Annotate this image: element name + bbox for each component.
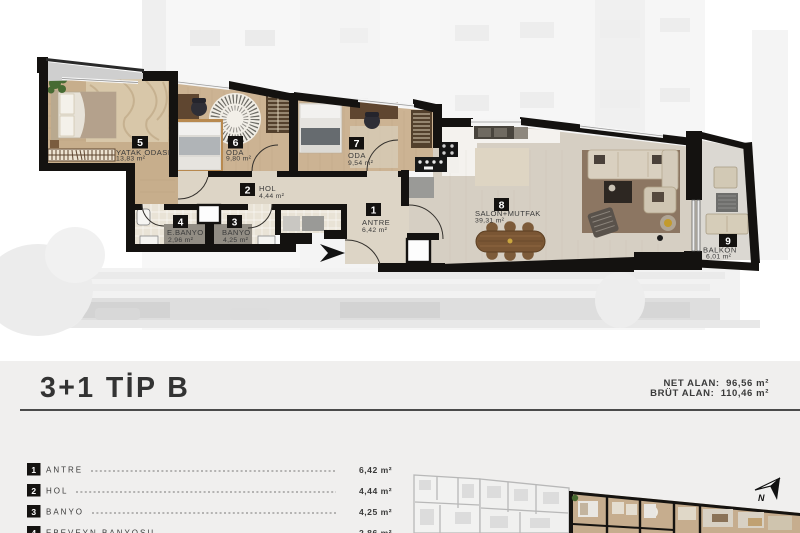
svg-text:2: 2 <box>31 486 36 496</box>
svg-text:6,42 m²: 6,42 m² <box>362 227 388 234</box>
svg-text:N: N <box>758 493 765 503</box>
svg-text:4: 4 <box>178 218 184 229</box>
svg-text:4,25 m²: 4,25 m² <box>223 237 249 244</box>
svg-text:ANTRE: ANTRE <box>362 218 390 227</box>
svg-text:HOL: HOL <box>259 184 276 193</box>
svg-text:39,31 m²: 39,31 m² <box>475 218 505 225</box>
svg-text:4,44 m²: 4,44 m² <box>359 486 392 496</box>
svg-text:7: 7 <box>354 138 360 150</box>
svg-text:HOL: HOL <box>46 487 68 496</box>
svg-text:2,96 m²: 2,96 m² <box>168 237 194 244</box>
svg-text:9,54 m²: 9,54 m² <box>348 160 374 167</box>
svg-text:E.BANYO: E.BANYO <box>167 228 204 237</box>
svg-text:9,80 m²: 9,80 m² <box>226 156 252 163</box>
svg-text:13,83 m²: 13,83 m² <box>116 156 146 163</box>
svg-text:ODA: ODA <box>348 151 366 160</box>
svg-text:1: 1 <box>31 465 36 475</box>
svg-text:BRÜT ALAN: 110,46 m²: BRÜT ALAN: 110,46 m² <box>650 388 769 399</box>
svg-text:6,42 m²: 6,42 m² <box>359 465 392 475</box>
svg-text:4: 4 <box>31 528 36 533</box>
svg-text:1: 1 <box>371 206 377 217</box>
svg-text:6,01 m²: 6,01 m² <box>706 254 732 261</box>
svg-text:2: 2 <box>245 185 251 197</box>
svg-text:3: 3 <box>31 507 36 517</box>
svg-text:3+1 TİP B: 3+1 TİP B <box>40 372 190 404</box>
svg-text:4,25 m²: 4,25 m² <box>359 507 392 517</box>
svg-text:4,44 m²: 4,44 m² <box>259 193 285 200</box>
svg-text:EBEVEYN BANYOSU: EBEVEYN BANYOSU <box>46 529 155 533</box>
svg-text:ANTRE: ANTRE <box>46 466 83 475</box>
svg-text:3: 3 <box>232 218 238 229</box>
svg-text:2,86 m²: 2,86 m² <box>359 528 392 533</box>
svg-text:BANYO: BANYO <box>46 508 84 517</box>
svg-text:BANYO: BANYO <box>222 228 251 237</box>
